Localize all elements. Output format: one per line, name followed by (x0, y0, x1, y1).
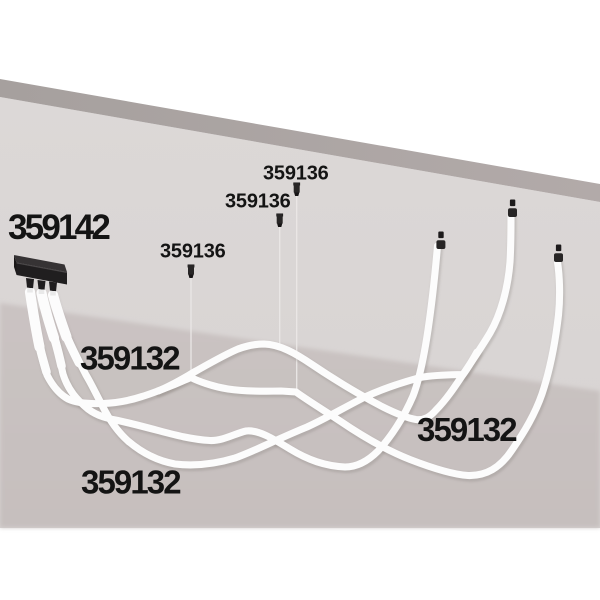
svg-text:359142: 359142 (8, 208, 110, 247)
svg-text:359136: 359136 (160, 241, 226, 263)
svg-text:359136: 359136 (225, 191, 291, 213)
svg-text:359132: 359132 (417, 411, 517, 448)
svg-text:359132: 359132 (80, 340, 180, 377)
svg-text:359132: 359132 (81, 464, 181, 501)
svg-text:359136: 359136 (263, 163, 329, 185)
